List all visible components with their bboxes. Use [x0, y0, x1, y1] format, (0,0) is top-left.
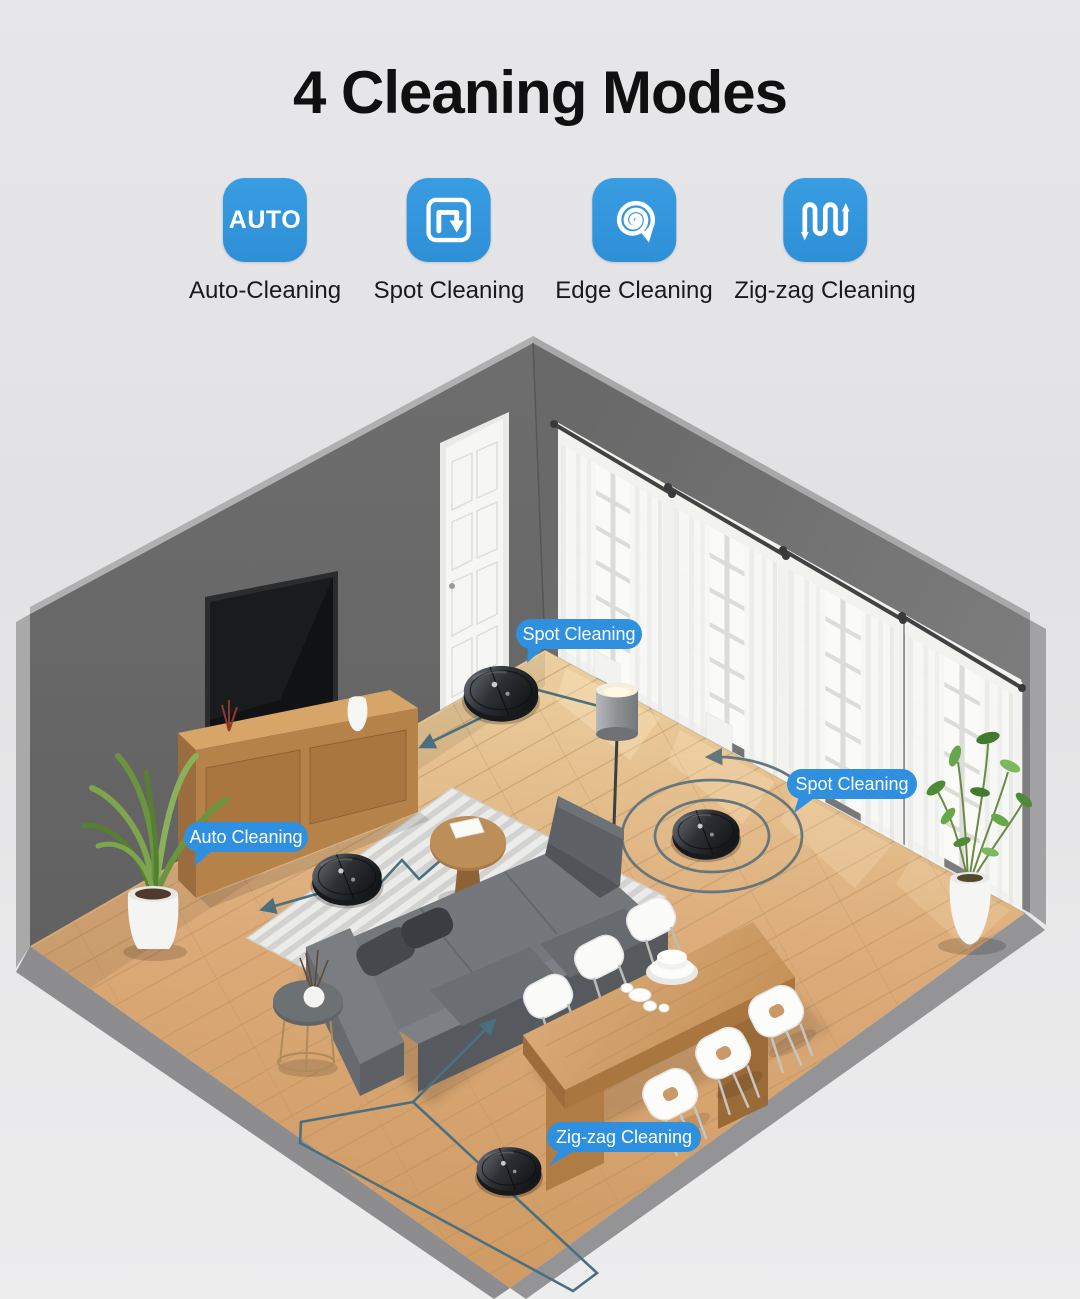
robot-vacuum-bottom — [475, 1147, 543, 1198]
robot-vacuum-top — [462, 666, 540, 725]
robot-vacuum-left — [310, 854, 383, 909]
label-text: Spot Cleaning — [522, 624, 635, 644]
left-wall-outer-edge — [16, 614, 30, 968]
right-wall-outer-edge — [1030, 620, 1046, 925]
label-text: Zig-zag Cleaning — [556, 1127, 692, 1147]
promo-page: 4 Cleaning Modes AUTO Auto-Cleaning Spot… — [0, 0, 1080, 1299]
room-illustration: Spot Cleaning Auto Cleaning Spot Cleanin… — [0, 0, 1080, 1299]
robot-vacuum-right — [671, 809, 742, 862]
door-knob — [449, 583, 455, 589]
label-text: Auto Cleaning — [189, 827, 302, 847]
label-text: Spot Cleaning — [795, 774, 908, 794]
